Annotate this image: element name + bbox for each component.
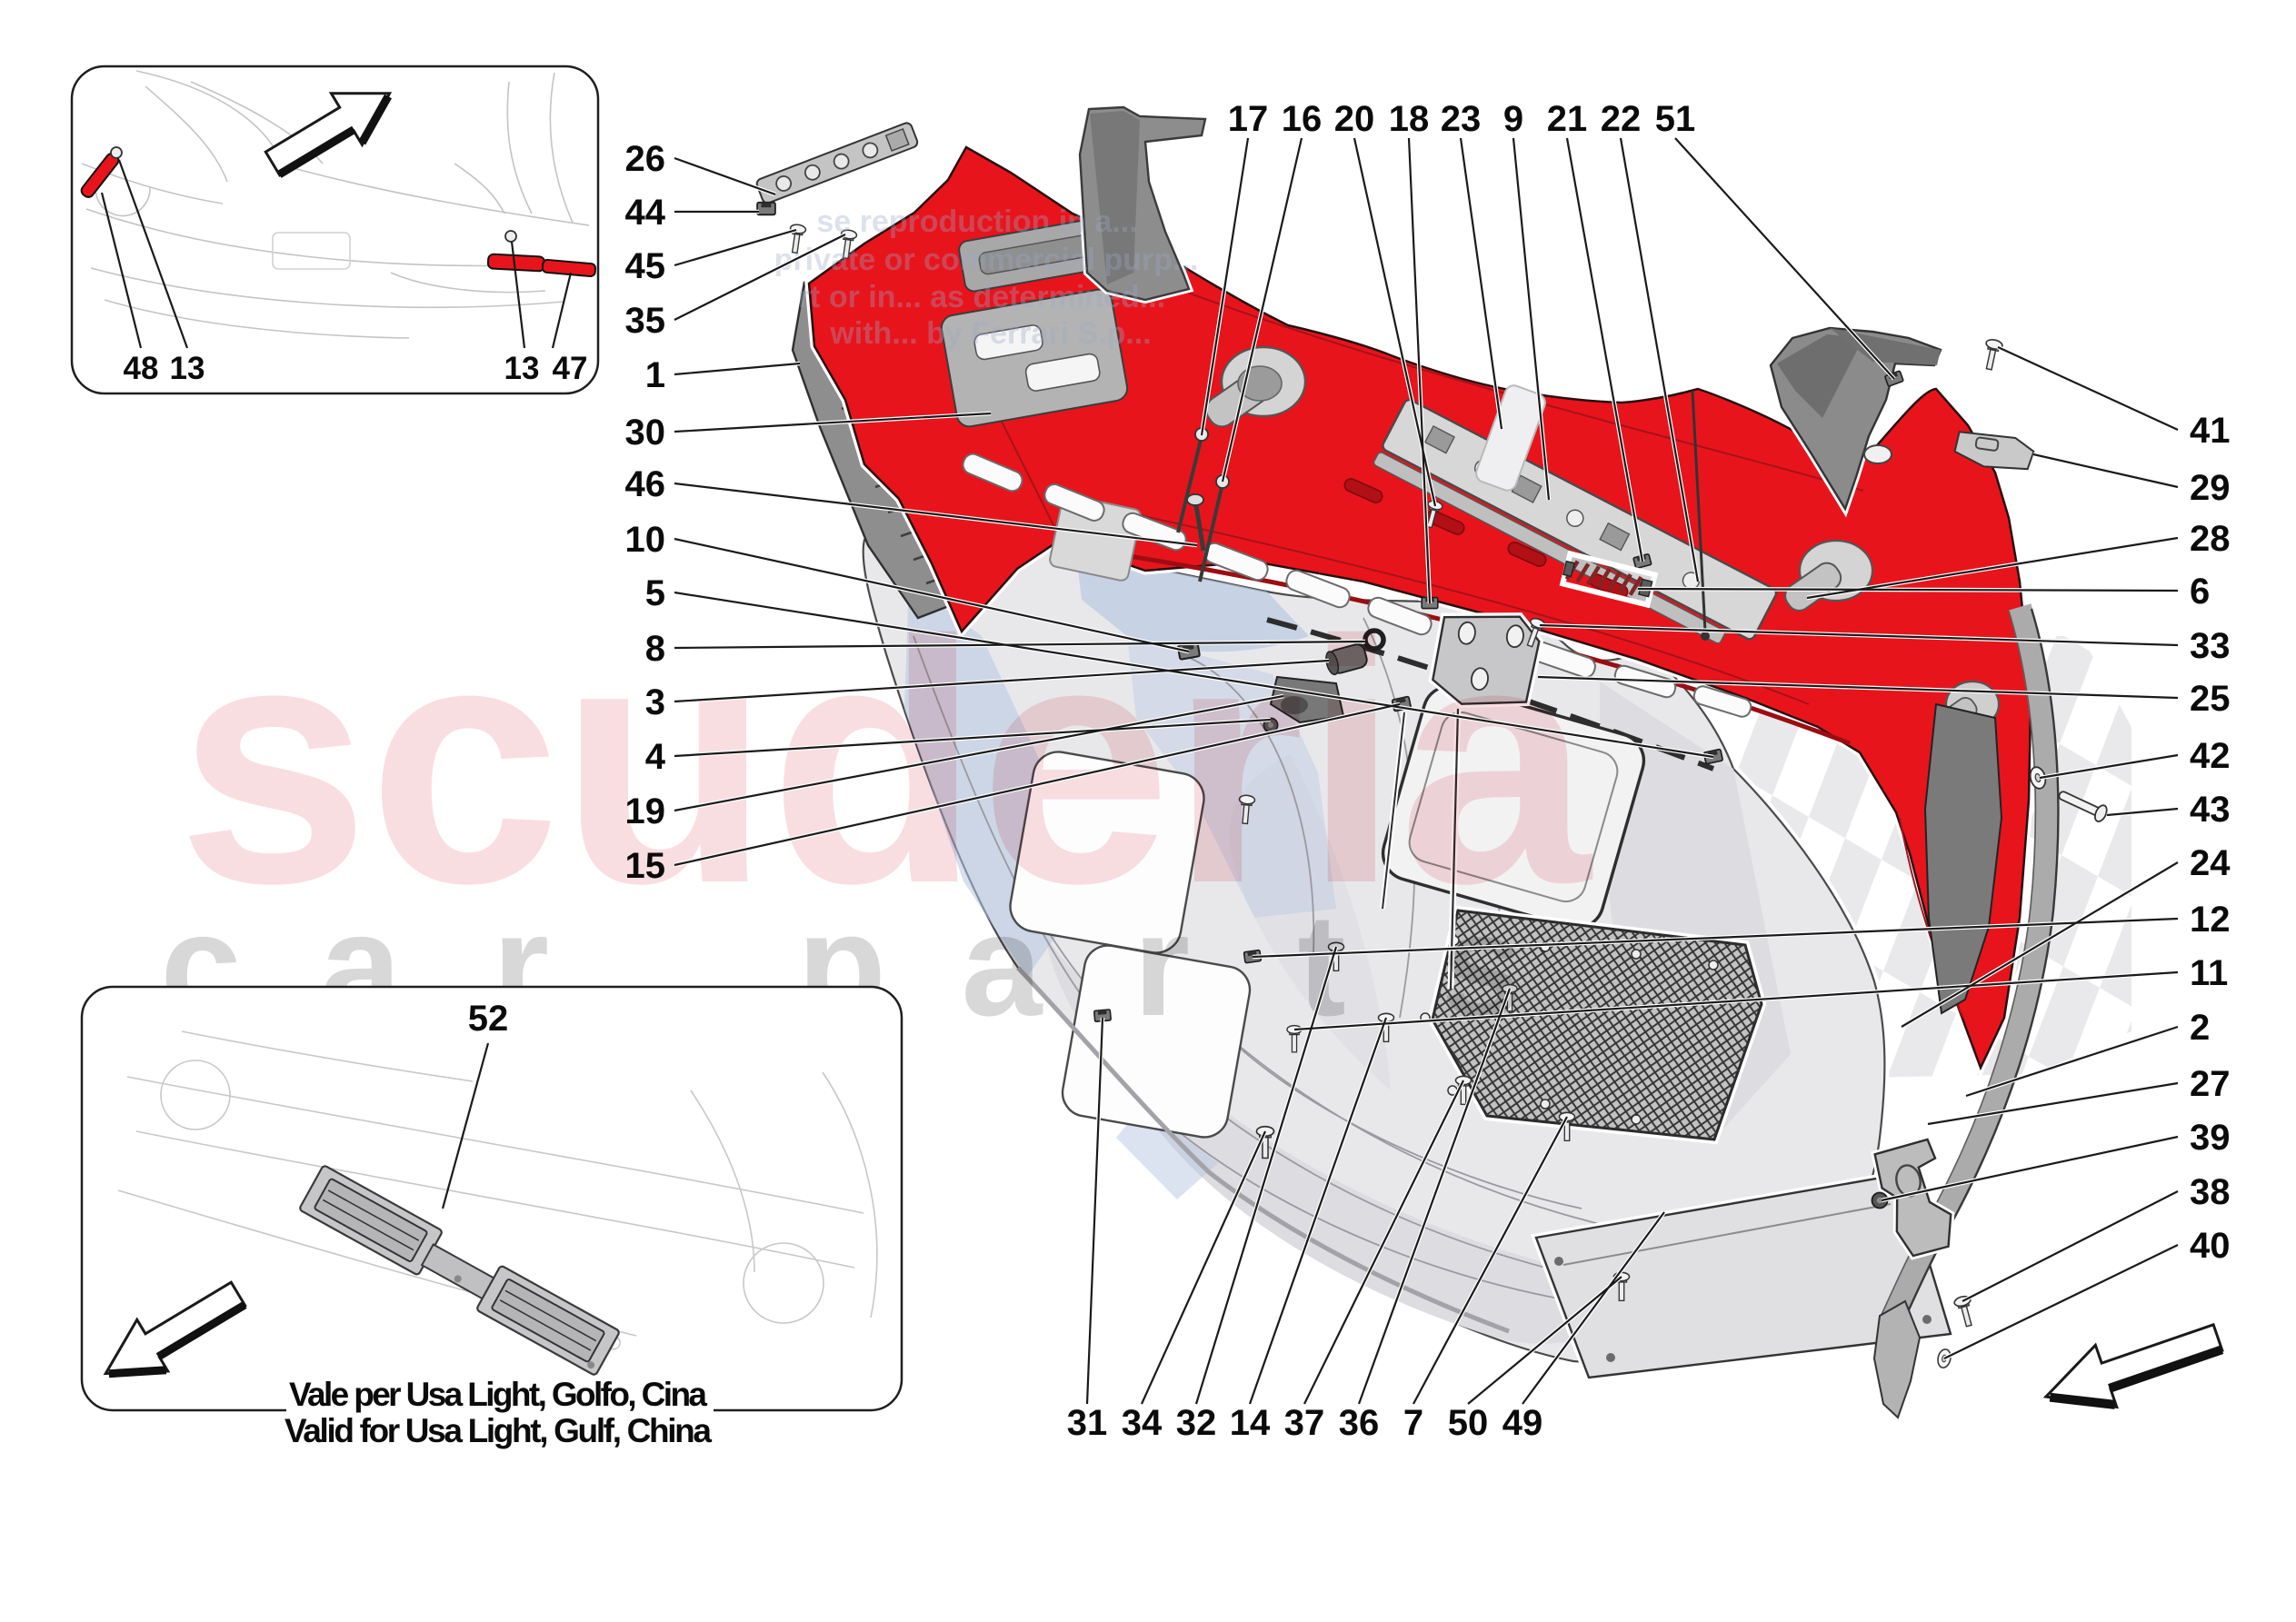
svg-text:12: 12 [2190, 900, 2231, 940]
svg-text:45: 45 [625, 246, 666, 286]
svg-text:39: 39 [2190, 1118, 2231, 1158]
svg-text:Valid for Usa Light, Gulf, Chi: Valid for Usa Light, Gulf, China [285, 1412, 712, 1449]
svg-text:29: 29 [2190, 468, 2231, 508]
svg-text:19: 19 [625, 791, 666, 831]
svg-text:15: 15 [625, 846, 666, 886]
svg-text:se reproduction in a...: se reproduction in a... [816, 204, 1137, 239]
svg-text:9: 9 [1503, 99, 1523, 139]
svg-text:13: 13 [170, 351, 205, 386]
svg-text:r: r [1133, 883, 1190, 1046]
svg-text:rt or in... as determined...: rt or in... as determined... [798, 280, 1165, 314]
svg-text:3: 3 [645, 682, 665, 722]
svg-text:a: a [962, 883, 1043, 1046]
svg-text:17: 17 [1228, 99, 1269, 139]
svg-text:31: 31 [1067, 1403, 1108, 1443]
svg-text:26: 26 [625, 139, 666, 179]
svg-text:13: 13 [504, 351, 540, 386]
svg-text:7: 7 [1403, 1403, 1423, 1443]
svg-text:28: 28 [2190, 519, 2231, 559]
svg-text:47: 47 [553, 351, 588, 386]
svg-text:24: 24 [2190, 843, 2231, 883]
svg-text:30: 30 [625, 413, 666, 453]
svg-text:46: 46 [625, 464, 666, 504]
svg-text:20: 20 [1334, 99, 1375, 139]
svg-text:with... by Ferrari S.p...: with... by Ferrari S.p... [829, 316, 1151, 351]
svg-text:41: 41 [2190, 411, 2231, 451]
svg-text:18: 18 [1389, 99, 1430, 139]
svg-text:11: 11 [2190, 953, 2228, 993]
svg-text:s: s [1442, 883, 1522, 1046]
svg-text:35: 35 [625, 301, 666, 341]
svg-text:51: 51 [1655, 99, 1696, 139]
svg-text:34: 34 [1122, 1403, 1163, 1443]
svg-text:t: t [1297, 883, 1345, 1046]
svg-text:10: 10 [625, 520, 666, 560]
svg-text:33: 33 [2190, 626, 2231, 666]
svg-text:Vale per Usa Light, Golfo, Cin: Vale per Usa Light, Golfo, Cina [289, 1376, 707, 1413]
svg-text:32: 32 [1176, 1403, 1217, 1443]
svg-text:44: 44 [625, 193, 666, 233]
svg-text:36: 36 [1339, 1403, 1380, 1443]
svg-text:49: 49 [1502, 1403, 1543, 1443]
svg-text:1: 1 [645, 355, 665, 395]
svg-text:2: 2 [2190, 1008, 2210, 1048]
svg-text:22: 22 [1601, 99, 1642, 139]
svg-text:42: 42 [2190, 736, 2231, 776]
svg-text:8: 8 [645, 629, 665, 669]
svg-text:private or commercial purp...: private or commercial purp... [774, 243, 1199, 277]
svg-text:40: 40 [2190, 1226, 2231, 1266]
svg-text:48: 48 [124, 351, 159, 386]
svg-text:21: 21 [1547, 99, 1588, 139]
svg-text:43: 43 [2190, 790, 2231, 830]
svg-text:5: 5 [645, 573, 665, 613]
svg-text:16: 16 [1282, 99, 1323, 139]
svg-text:6: 6 [2190, 572, 2210, 612]
svg-text:25: 25 [2190, 679, 2231, 719]
svg-text:23: 23 [1441, 99, 1482, 139]
svg-text:4: 4 [645, 737, 666, 777]
svg-text:27: 27 [2190, 1064, 2231, 1104]
svg-text:14: 14 [1230, 1403, 1271, 1443]
svg-text:37: 37 [1284, 1403, 1325, 1443]
svg-text:50: 50 [1448, 1403, 1489, 1443]
svg-text:52: 52 [468, 999, 509, 1039]
svg-text:38: 38 [2190, 1172, 2231, 1212]
